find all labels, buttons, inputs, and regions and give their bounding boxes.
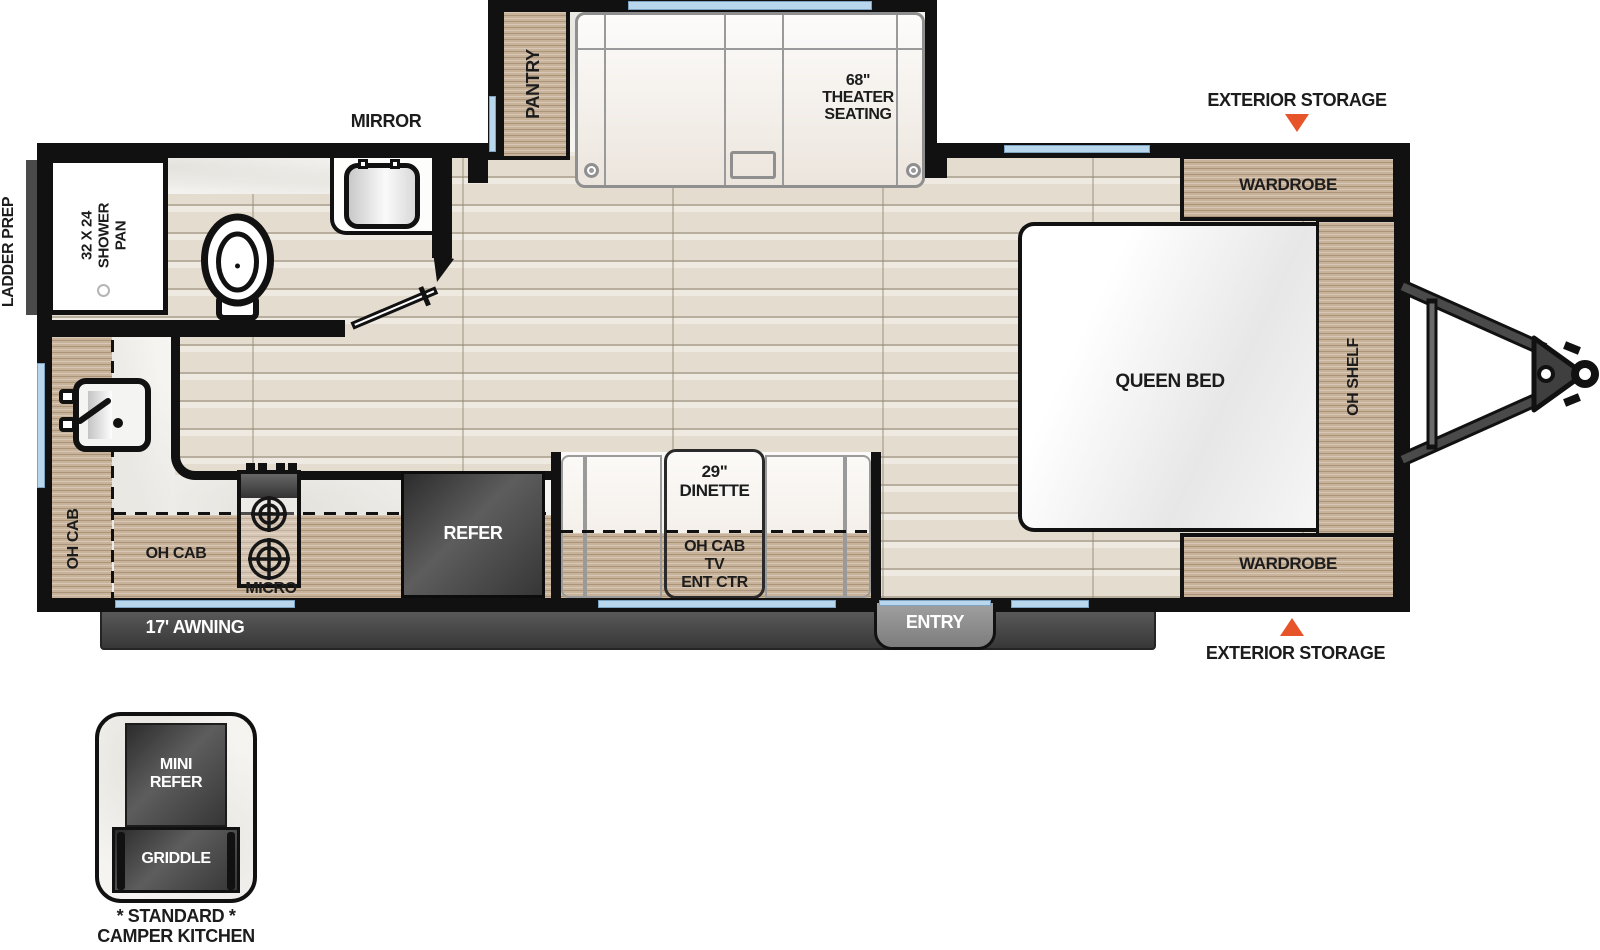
dinette-oh-dash bbox=[561, 530, 871, 533]
mirror-label: MIRROR bbox=[334, 112, 438, 131]
wall-slide-left-jog bbox=[468, 143, 488, 183]
griddle-label: GRIDDLE bbox=[112, 851, 240, 868]
cupholder-icon bbox=[584, 163, 599, 178]
dinette-size-label: 29" DINETTE bbox=[664, 462, 765, 500]
pantry-label: PANTRY bbox=[524, 14, 546, 154]
cupholder-icon bbox=[906, 163, 921, 178]
arrow-down-icon bbox=[1285, 114, 1309, 132]
sofa-armrest-left-line bbox=[604, 15, 606, 185]
dinette-bench-backrest-right bbox=[845, 455, 871, 598]
arrow-up-icon bbox=[1280, 618, 1304, 636]
bathroom-wall-bottom bbox=[37, 320, 345, 337]
dinette-left-wall bbox=[551, 452, 561, 600]
queen-bed-label: QUEEN BED bbox=[1080, 372, 1260, 392]
console-cup-tray bbox=[730, 151, 776, 179]
dinette-bench-backrest-left bbox=[561, 455, 585, 598]
micro-label: MICRO bbox=[234, 581, 308, 598]
wall-top-left bbox=[37, 143, 488, 158]
window bbox=[1004, 145, 1150, 153]
wardrobe-bottom-label: WARDROBE bbox=[1198, 555, 1378, 573]
sofa-console-right-line bbox=[782, 15, 784, 185]
ladder-prep-label: LADDER PREP bbox=[1, 162, 21, 342]
oh-cab-left-label: OH CAB bbox=[66, 489, 86, 589]
bath-faucet-icon bbox=[358, 159, 368, 169]
bath-faucet-icon bbox=[390, 159, 400, 169]
toilet-icon bbox=[195, 210, 280, 325]
sofa-back-line bbox=[578, 48, 922, 50]
cooktop-knob bbox=[246, 463, 255, 471]
window bbox=[37, 363, 45, 488]
wall-top-right bbox=[925, 143, 1410, 158]
exterior-storage-top-label: EXTERIOR STORAGE bbox=[1182, 91, 1412, 110]
wardrobe-top-label: WARDROBE bbox=[1198, 176, 1378, 194]
mini-refer-label: MINI REFER bbox=[125, 756, 227, 792]
window bbox=[115, 600, 295, 608]
camper-kitchen-caption-top: * STANDARD * bbox=[78, 907, 274, 926]
burner-icons bbox=[239, 474, 299, 586]
bath-sink-icon bbox=[344, 163, 420, 229]
cooktop-knob bbox=[288, 463, 297, 471]
dinette-bench-seat-right bbox=[765, 455, 845, 598]
window bbox=[1011, 600, 1089, 608]
camper-kitchen-caption-bottom: CAMPER KITCHEN bbox=[68, 927, 284, 946]
cooktop-knob bbox=[258, 463, 267, 471]
window bbox=[879, 600, 991, 606]
window bbox=[628, 1, 872, 10]
slideout-wall-right bbox=[925, 0, 937, 160]
dinette-bench-seat-left bbox=[585, 455, 662, 598]
theater-seating-label: 68" THEATER SEATING bbox=[798, 72, 918, 123]
window bbox=[598, 600, 836, 608]
sofa-console-left-line bbox=[724, 15, 726, 185]
oh-shelf-label: OH SHELF bbox=[1346, 302, 1366, 452]
dinette-oh-cab-tv-label: OH CAB TV ENT CTR bbox=[664, 538, 765, 592]
cooktop-knob bbox=[276, 463, 285, 471]
kitchen-counter-edge bbox=[171, 337, 553, 480]
entry-label: ENTRY bbox=[884, 613, 986, 632]
exterior-storage-bottom-label: EXTERIOR STORAGE bbox=[1178, 644, 1413, 663]
window bbox=[489, 96, 496, 152]
trailer-hitch-icon bbox=[1398, 278, 1600, 470]
oh-cab-bottom-label: OH CAB bbox=[126, 546, 226, 563]
shower-drain-icon bbox=[97, 284, 110, 297]
rv-floorplan-diagram: 17' AWNING LADDER PREP 68" THEATER SEATI… bbox=[0, 0, 1600, 950]
bathroom-wall-right bbox=[432, 158, 452, 258]
awning-label: 17' AWNING bbox=[125, 618, 265, 637]
refer-label: REFER bbox=[413, 524, 533, 543]
dinette-right-wall bbox=[871, 452, 881, 600]
kitchen-sink-icon bbox=[58, 375, 153, 455]
